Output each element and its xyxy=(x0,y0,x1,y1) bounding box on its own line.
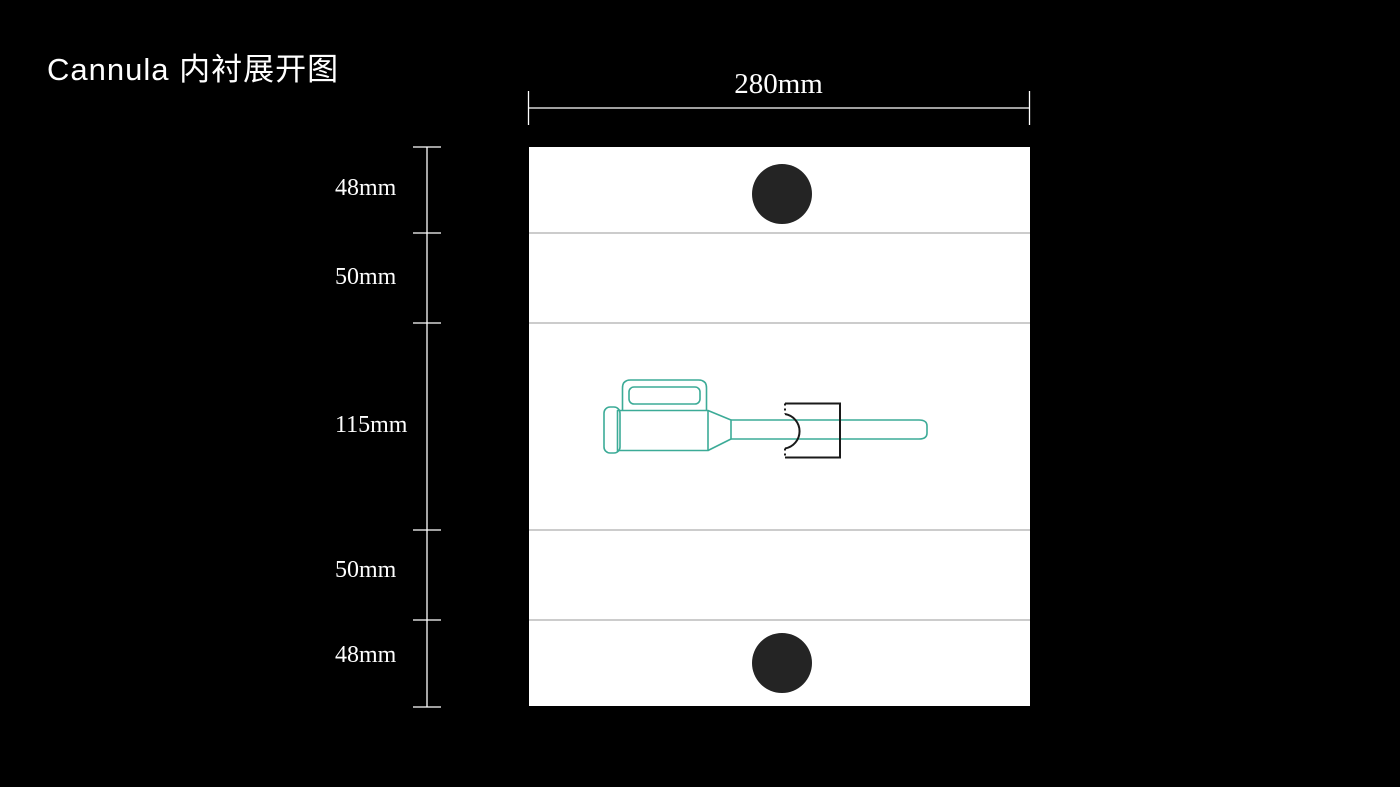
slide-background: Cannula 内衬展开图 xyxy=(0,0,1400,787)
height-segment-label-4: 50mm xyxy=(335,557,425,583)
height-segment-label-2: 50mm xyxy=(335,264,425,290)
liner-unfold-diagram xyxy=(0,0,1400,787)
height-segment-label-1: 48mm xyxy=(335,175,425,201)
height-segment-label-5: 48mm xyxy=(335,642,425,668)
height-segment-label-3: 115mm xyxy=(335,412,425,438)
hole-top xyxy=(752,164,812,224)
width-dimension-label: 280mm xyxy=(528,68,1029,101)
hole-bottom xyxy=(752,633,812,693)
